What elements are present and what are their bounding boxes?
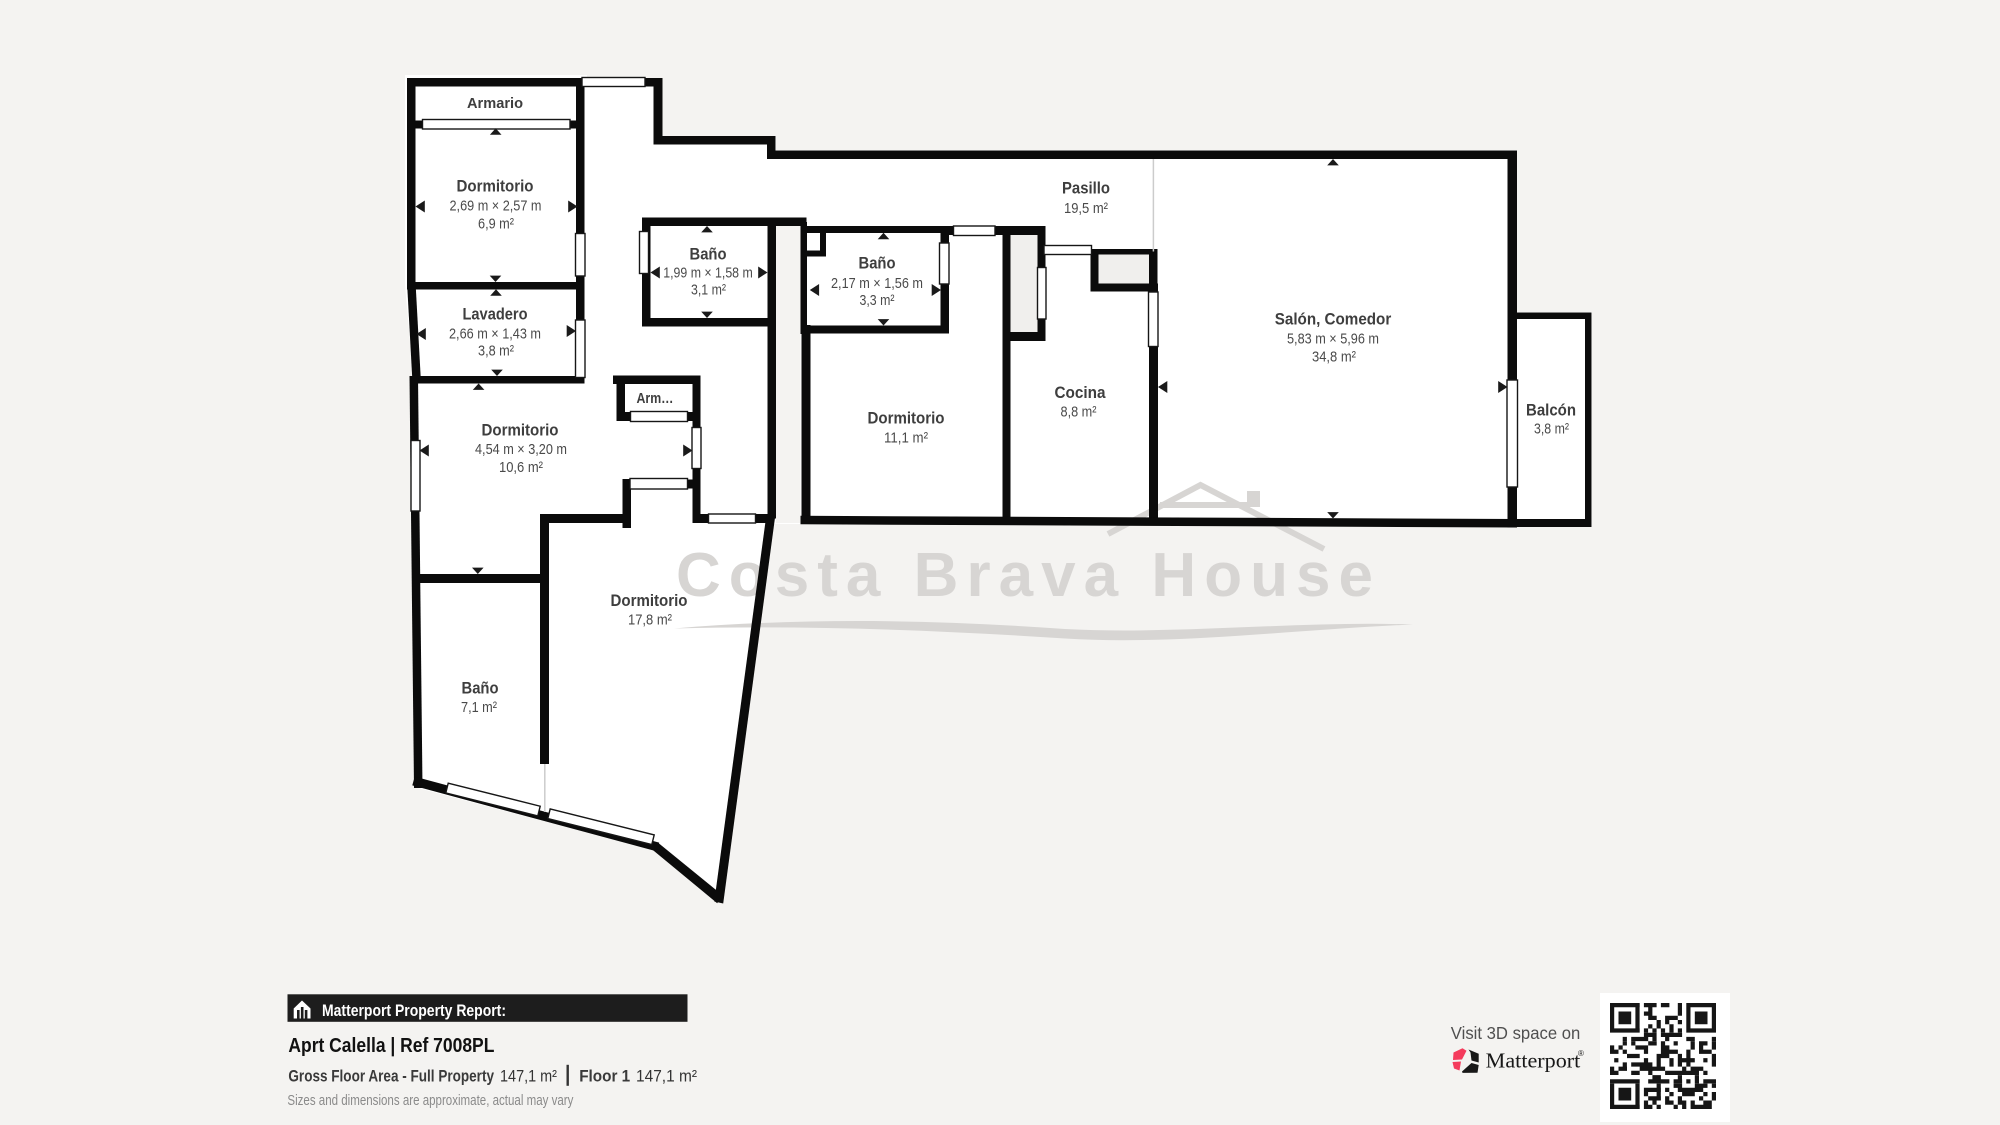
svg-text:Dormitorio: Dormitorio <box>868 409 945 428</box>
svg-text:Gross Floor Area - Full Proper: Gross Floor Area - Full Property <box>288 1066 494 1085</box>
svg-text:Matterport: Matterport <box>1486 1049 1581 1073</box>
svg-text:10,6 m²: 10,6 m² <box>499 459 543 476</box>
svg-text:4,54 m × 3,20 m: 4,54 m × 3,20 m <box>475 441 567 458</box>
svg-text:8,8 m²: 8,8 m² <box>1061 404 1097 421</box>
svg-text:Dormitorio: Dormitorio <box>611 591 688 610</box>
svg-text:2,17 m × 1,56 m: 2,17 m × 1,56 m <box>831 275 923 292</box>
svg-text:Salón, Comedor: Salón, Comedor <box>1275 310 1392 329</box>
svg-text:34,8 m²: 34,8 m² <box>1312 349 1356 366</box>
svg-text:Balcón: Balcón <box>1526 401 1576 420</box>
svg-text:Visit 3D space on: Visit 3D space on <box>1451 1023 1581 1043</box>
svg-text:Floor 1: Floor 1 <box>579 1066 630 1085</box>
svg-text:Baño: Baño <box>859 254 896 273</box>
svg-text:7,1 m²: 7,1 m² <box>461 699 497 716</box>
svg-text:Matterport Property Report:: Matterport Property Report: <box>322 1001 506 1020</box>
svg-text:Arm…: Arm… <box>637 390 674 407</box>
svg-text:Cocina: Cocina <box>1055 383 1106 402</box>
svg-text:Armario: Armario <box>467 95 523 112</box>
svg-text:11,1 m²: 11,1 m² <box>884 430 928 447</box>
svg-text:2,66 m × 1,43 m: 2,66 m × 1,43 m <box>449 326 541 343</box>
svg-text:17,8 m²: 17,8 m² <box>628 612 672 629</box>
svg-text:3,8 m²: 3,8 m² <box>478 343 514 360</box>
svg-text:Aprt Calella | Ref 7008PL: Aprt Calella | Ref 7008PL <box>288 1034 494 1057</box>
svg-text:Lavadero: Lavadero <box>463 305 528 324</box>
svg-text:147,1 m²: 147,1 m² <box>636 1066 697 1085</box>
svg-text:3,8 m²: 3,8 m² <box>1534 421 1569 438</box>
svg-text:1,99 m × 1,58 m: 1,99 m × 1,58 m <box>663 265 753 282</box>
svg-text:5,83 m × 5,96 m: 5,83 m × 5,96 m <box>1287 331 1379 348</box>
svg-text:®: ® <box>1578 1049 1584 1058</box>
svg-text:Pasillo: Pasillo <box>1062 179 1110 198</box>
svg-text:Dormitorio: Dormitorio <box>482 421 559 440</box>
svg-text:147,1 m²: 147,1 m² <box>500 1066 557 1085</box>
svg-text:6,9 m²: 6,9 m² <box>478 216 514 233</box>
svg-text:19,5 m²: 19,5 m² <box>1064 200 1108 217</box>
svg-text:Sizes and dimensions are appro: Sizes and dimensions are approximate, ac… <box>287 1093 574 1109</box>
svg-text:Costa Brava House: Costa Brava House <box>676 541 1373 610</box>
svg-text:2,69 m × 2,57 m: 2,69 m × 2,57 m <box>450 198 542 215</box>
svg-text:Baño: Baño <box>690 245 727 264</box>
svg-text:Dormitorio: Dormitorio <box>457 177 534 196</box>
svg-text:3,1 m²: 3,1 m² <box>691 282 726 299</box>
svg-text:3,3 m²: 3,3 m² <box>860 292 895 309</box>
svg-text:Baño: Baño <box>462 679 499 698</box>
